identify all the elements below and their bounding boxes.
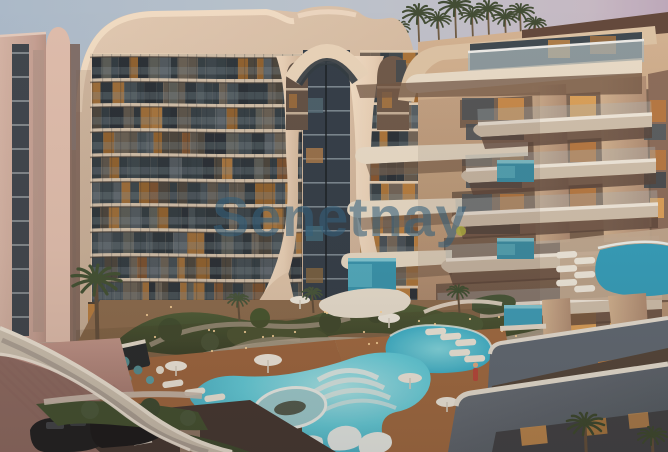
svg-text:Senetnay: Senetnay	[212, 185, 467, 248]
